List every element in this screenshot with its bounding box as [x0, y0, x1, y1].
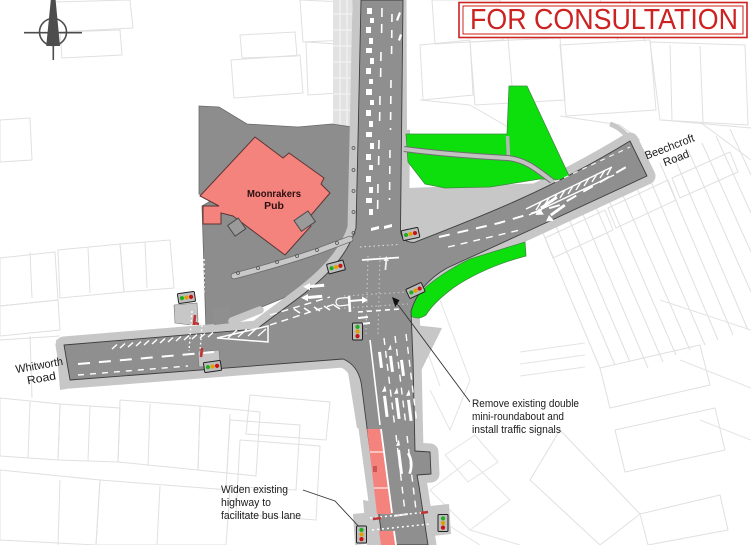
svg-text:Pub: Pub: [264, 200, 284, 212]
svg-text:install traffic signals: install traffic signals: [472, 424, 561, 436]
svg-text:Moonrakers: Moonrakers: [247, 188, 301, 200]
svg-text:Widen existing: Widen existing: [221, 484, 288, 496]
svg-text:FOR CONSULTATION: FOR CONSULTATION: [470, 4, 738, 36]
svg-text:facilitate bus lane: facilitate bus lane: [221, 510, 301, 522]
svg-text:mini-roundabout and: mini-roundabout and: [472, 411, 564, 423]
svg-text:highway to: highway to: [221, 497, 271, 509]
svg-text:Remove existing double: Remove existing double: [472, 398, 579, 410]
